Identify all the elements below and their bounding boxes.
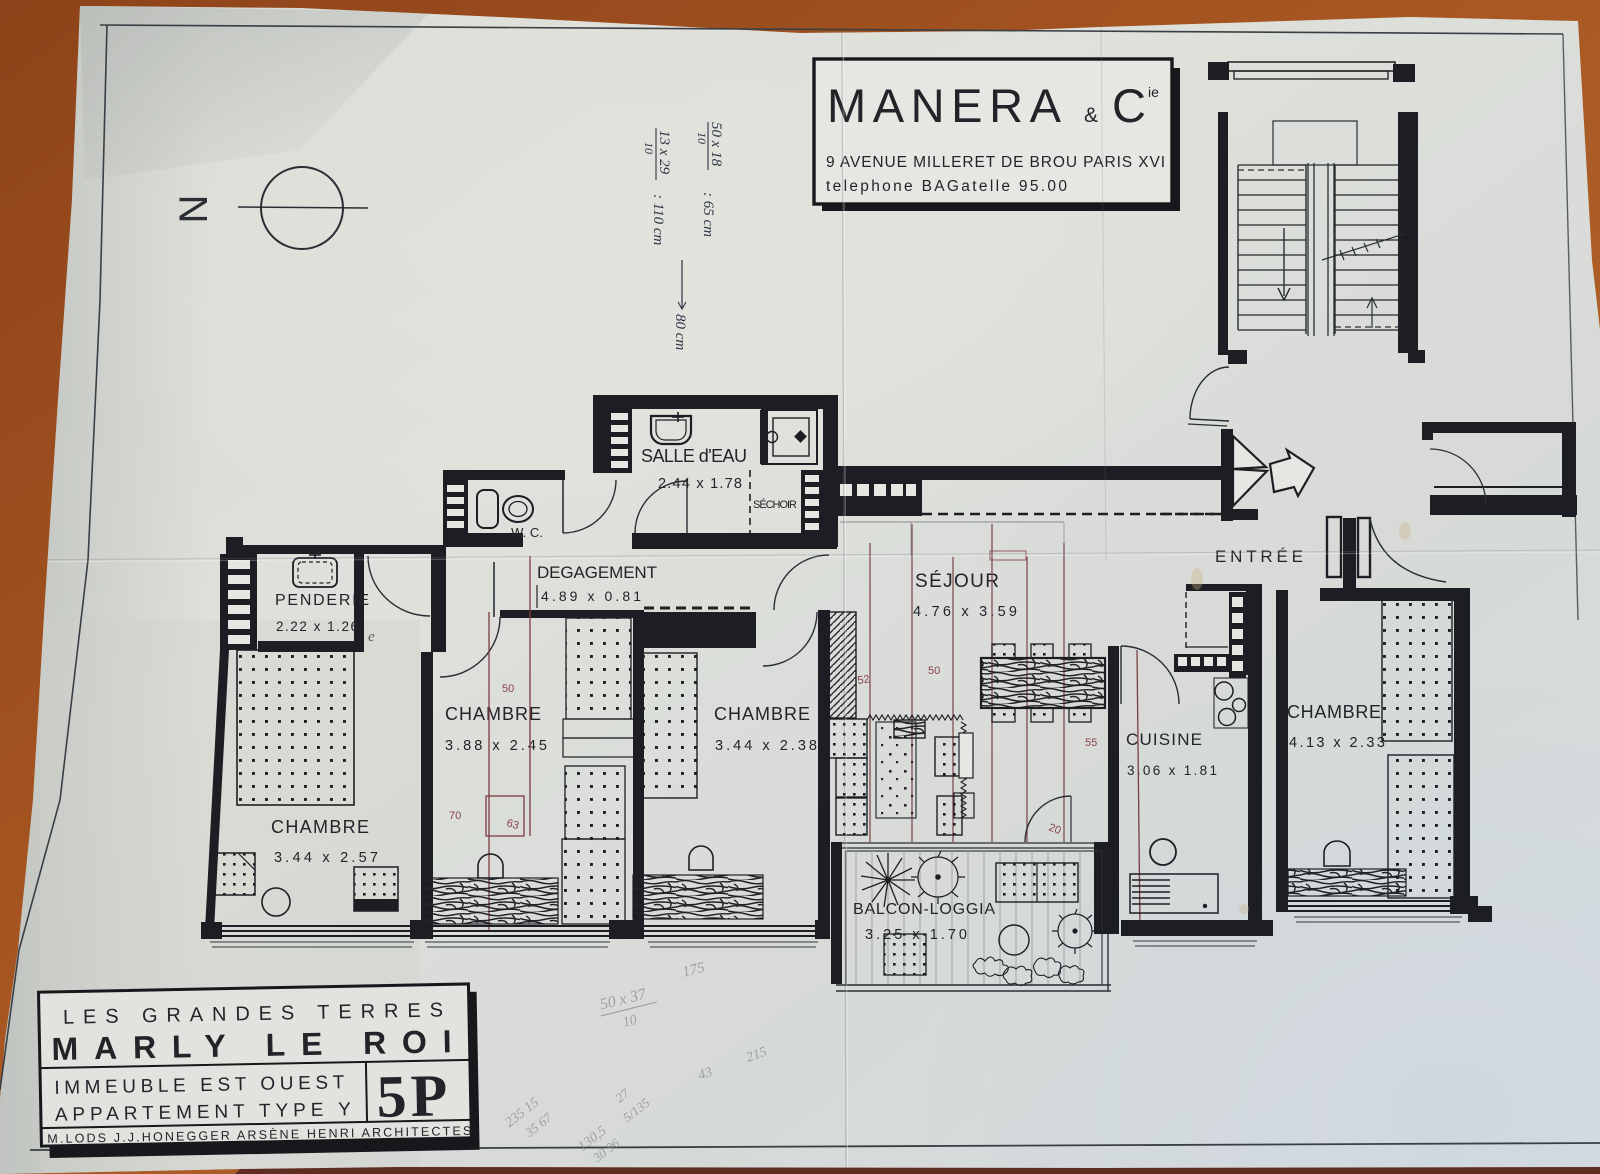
svg-text:CHAMBRE: CHAMBRE: [271, 817, 369, 837]
svg-text:80 cm: 80 cm: [672, 314, 688, 350]
svg-text:ie: ie: [1148, 84, 1159, 100]
svg-text:PENDERIE: PENDERIE: [275, 592, 369, 609]
svg-text:CHAMBRE: CHAMBRE: [445, 704, 541, 724]
svg-text:50 x 18: 50 x 18: [708, 122, 724, 167]
svg-text:4.13 x 2.33: 4.13 x 2.33: [1289, 735, 1385, 751]
svg-text:10: 10: [642, 142, 656, 154]
svg-text:50: 50: [502, 683, 514, 695]
svg-text:SALLE d'EAU: SALLE d'EAU: [641, 446, 747, 466]
svg-text:CHAMBRE: CHAMBRE: [1287, 702, 1381, 722]
svg-text:BALCON-LOGGIA: BALCON-LOGGIA: [853, 901, 995, 918]
svg-text:telephone BAGatelle 95.00: telephone BAGatelle 95.00: [826, 178, 1067, 195]
svg-text:DEGAGEMENT: DEGAGEMENT: [537, 563, 657, 582]
svg-text:N: N: [172, 195, 216, 224]
svg-text:2.22 x 1.26: 2.22 x 1.26: [276, 619, 358, 634]
svg-text:MANERA: MANERA: [827, 79, 1075, 132]
svg-text:C: C: [1112, 79, 1146, 132]
svg-text:3.06 x 1.81: 3.06 x 1.81: [1127, 763, 1217, 778]
svg-text:SÉJOUR: SÉJOUR: [915, 571, 999, 592]
svg-text:70: 70: [449, 810, 461, 822]
svg-text:e: e: [368, 629, 375, 645]
svg-text:10: 10: [695, 132, 709, 144]
svg-text:5P: 5P: [376, 1062, 452, 1129]
svg-text:52: 52: [857, 673, 871, 687]
svg-text:9 AVENUE MILLERET DE BROU PARI: 9 AVENUE MILLERET DE BROU PARIS XVI: [826, 154, 1165, 171]
svg-text:CHAMBRE: CHAMBRE: [714, 704, 810, 724]
svg-text:55: 55: [1085, 737, 1097, 749]
svg-text:SÉCHOIR: SÉCHOIR: [753, 498, 797, 511]
svg-text:: 65 cm: : 65 cm: [700, 192, 716, 237]
svg-text:W. C.: W. C.: [511, 525, 543, 540]
svg-text:&: &: [1084, 104, 1098, 127]
svg-text:13 x 29: 13 x 29: [656, 130, 672, 175]
svg-text:: 110 cm: : 110 cm: [650, 194, 666, 246]
svg-text:50: 50: [928, 665, 940, 677]
